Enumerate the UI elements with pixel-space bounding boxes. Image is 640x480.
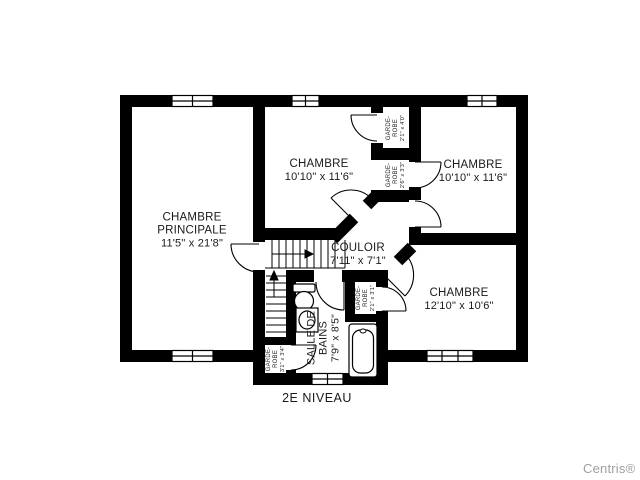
floor-plan-drawing <box>0 0 640 480</box>
window-icon <box>172 351 213 362</box>
room-dims: 10'10" x 11'6" <box>439 172 507 185</box>
closet-name: GARDE-ROBE <box>386 114 400 142</box>
closet-label-bottom-left: GARDE-ROBE 3'1" x 3'4" <box>266 345 286 373</box>
window-icon <box>292 96 319 107</box>
room-dims: 11'5" x 21'8" <box>140 238 245 251</box>
closet-dims: 2'1" x 4'0" <box>400 114 407 142</box>
toilet-icon <box>293 284 315 311</box>
room-label-chambre-top-right: CHAMBRE 10'10" x 11'6" <box>439 159 507 185</box>
closet-name: GARDE-ROBE <box>386 161 400 189</box>
stairs-direction-arrow-up <box>270 271 278 297</box>
closet-dims: 3'1" x 3'4" <box>280 345 287 373</box>
centris-watermark: Centris® <box>583 461 635 476</box>
door-swing-icon <box>316 282 344 310</box>
door-swing-icon <box>331 190 372 219</box>
closet-label-top-right-lower: GARDE-ROBE 2'6" x 3'3" <box>386 161 406 189</box>
room-dims: 7'11" x 7'1" <box>330 255 386 268</box>
room-label-couloir: COULOIR 7'11" x 7'1" <box>330 242 386 268</box>
room-label-salle-de-bains: SALLE DE BAINS 7'9" x 8'5" <box>306 310 343 366</box>
closet-name: GARDE-ROBE <box>266 345 280 373</box>
room-name: CHAMBRE <box>439 159 507 172</box>
room-name: CHAMBRE PRINCIPALE <box>140 212 245 238</box>
room-name: CHAMBRE <box>424 287 493 300</box>
room-dims: 12'10" x 10'6" <box>424 300 493 313</box>
level-label: 2E NIVEAU <box>282 391 352 405</box>
closet-label-center: GARDE-ROBE 2'1" x 3'1" <box>356 284 376 312</box>
window-icon <box>467 96 497 107</box>
window-icon <box>427 351 473 362</box>
closet-dims: 2'1" x 3'1" <box>370 284 377 312</box>
floor-plan-page: { "page": { "level_label": "2E NIVEAU", … <box>0 0 640 480</box>
room-label-chambre-bottom-right: CHAMBRE 12'10" x 10'6" <box>424 287 493 313</box>
bathtub-icon <box>349 324 377 377</box>
room-name: COULOIR <box>330 242 386 255</box>
room-dims: 7'9" x 8'5" <box>330 310 343 366</box>
closet-label-top-right-upper: GARDE-ROBE 2'1" x 4'0" <box>386 114 406 142</box>
window-icon <box>172 96 213 107</box>
room-name: CHAMBRE <box>285 158 353 171</box>
room-label-chambre-principale: CHAMBRE PRINCIPALE 11'5" x 21'8" <box>140 212 245 251</box>
room-name: SALLE DE BAINS <box>306 310 330 366</box>
room-dims: 10'10" x 11'6" <box>285 171 353 184</box>
closet-dims: 2'6" x 3'3" <box>400 161 407 189</box>
closet-name: GARDE-ROBE <box>356 284 370 312</box>
room-label-chambre-top-middle: CHAMBRE 10'10" x 11'6" <box>285 158 353 184</box>
window-icon <box>312 374 343 385</box>
